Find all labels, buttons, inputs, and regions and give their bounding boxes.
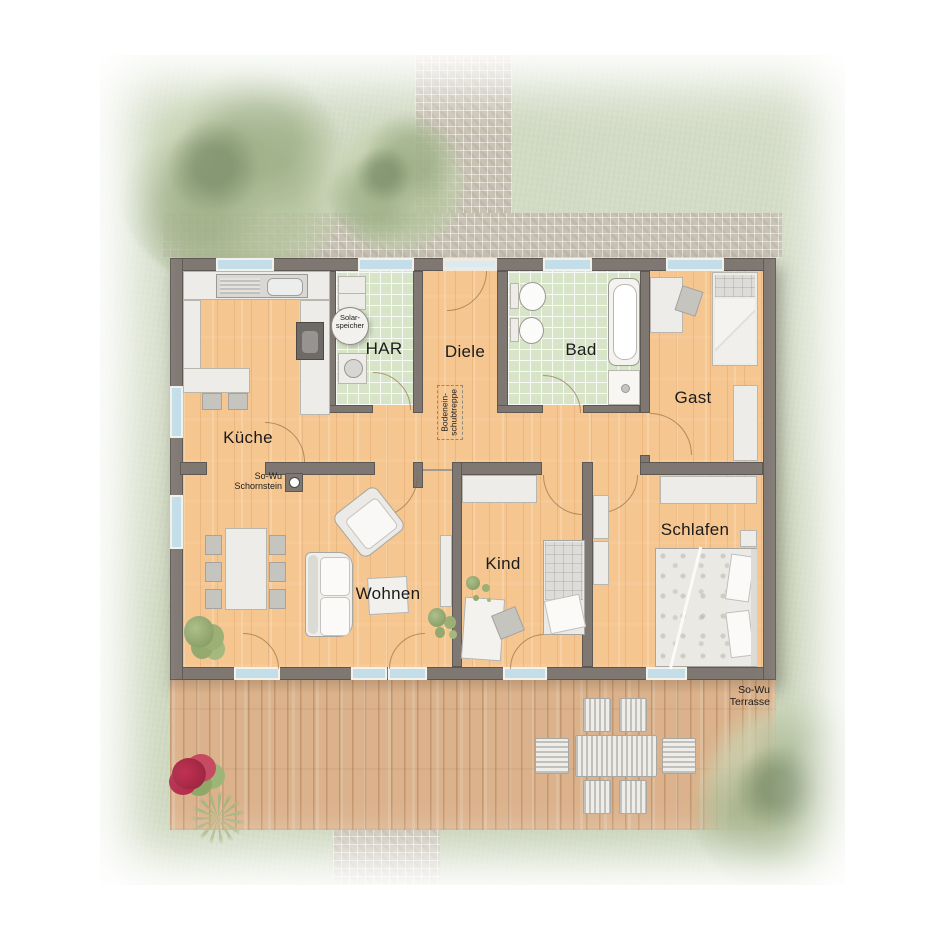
schlafen-cabinet-left-2 — [593, 541, 609, 585]
terrace-label-line2: Terrasse — [640, 697, 770, 709]
toilet-tank — [510, 283, 519, 309]
wall-diele-bad — [497, 271, 508, 413]
house: Solar- speicher Bodenein- schubtreppe — [170, 258, 776, 680]
bidet-bowl — [519, 317, 544, 344]
terrace-label-line1: So-Wu — [640, 685, 770, 697]
tree-top-left-large — [115, 63, 350, 288]
plant-kind — [466, 576, 480, 590]
terrace-table — [575, 735, 657, 777]
chimney-label: So-Wu Schornstein — [202, 472, 282, 492]
gast-bed-blanket — [715, 299, 755, 363]
solar-tank-label: Solar- speicher — [327, 314, 373, 331]
window-kueche-left — [172, 388, 181, 436]
window-wohnen-left — [172, 497, 181, 547]
window-har-top — [360, 260, 412, 269]
terrace-door-kind — [505, 669, 545, 678]
wall-bad-bottom-right — [583, 405, 640, 413]
dining-chair-l2 — [205, 562, 222, 582]
label-diele: Diele — [445, 342, 485, 362]
wall-bad-bottom-left — [497, 405, 543, 413]
bidet-tank — [510, 318, 519, 342]
plant-wohnen-right — [428, 608, 446, 627]
window-bad-top — [545, 260, 590, 269]
schlafen-wardrobe — [660, 476, 757, 504]
kind-shelf — [462, 475, 537, 503]
chimney-flue-icon — [289, 477, 300, 488]
window-wohnen-bottom — [353, 669, 385, 678]
har-shelf-divider — [339, 293, 365, 294]
label-kind: Kind — [485, 554, 520, 574]
bathtub-basin — [613, 284, 637, 360]
wall-wohnen-kind — [452, 462, 462, 667]
wohnen-cabinet — [440, 535, 452, 607]
sink-basin — [267, 278, 303, 296]
entrance-threshold — [445, 261, 495, 267]
sink-drainer — [220, 278, 260, 294]
tree-top-left-small — [325, 110, 465, 250]
open-plan-line — [423, 469, 452, 471]
red-flower-bush — [172, 758, 206, 790]
kind-bed — [543, 540, 585, 635]
kind-bed-blanket — [545, 542, 583, 600]
dining-chair-l3 — [205, 589, 222, 609]
window-kueche-top — [218, 260, 272, 269]
wall-har-diele — [413, 271, 423, 413]
sofa-back — [308, 555, 318, 634]
wall-middle-seg3 — [452, 462, 542, 475]
wall-middle-seg4 — [640, 462, 763, 475]
loft-stairs-label: Bodenein- schubtreppe — [441, 369, 460, 455]
kitchen-cabinet-left — [183, 300, 201, 370]
terrace-chair-bottom-2 — [619, 780, 647, 814]
stove-pan — [302, 331, 318, 353]
terrace-door-wohnen-1 — [236, 669, 278, 678]
toilet-bowl — [519, 282, 546, 311]
kitchen-peninsula — [183, 368, 250, 393]
dining-chair-r3 — [269, 589, 286, 609]
terrace-door-schlafen — [648, 669, 685, 678]
wall-bad-gast — [640, 271, 650, 413]
kitchen-stool-2 — [228, 393, 248, 410]
terrace-label: So-Wu Terrasse — [640, 685, 770, 708]
wall-exterior-right — [763, 258, 776, 680]
schlafen-bed — [655, 548, 757, 667]
yucca-plant — [190, 792, 246, 844]
shower-drain — [621, 384, 630, 393]
plant-wohnen-left — [184, 616, 214, 648]
sofa-cushion-2 — [320, 597, 350, 636]
dining-chair-l1 — [205, 535, 222, 555]
bathtub — [608, 278, 640, 366]
label-har: HAR — [366, 339, 403, 359]
har-shelf — [338, 276, 366, 310]
kind-bed-pillow — [544, 594, 586, 635]
garden-scene: Solar- speicher Bodenein- schubtreppe — [100, 55, 845, 885]
terrace-chair-bottom-1 — [583, 780, 611, 814]
kitchen-sink — [216, 274, 308, 298]
shower — [608, 370, 640, 405]
washer-drum — [344, 359, 363, 378]
label-gast: Gast — [674, 388, 711, 408]
gast-bed-pillow — [715, 275, 755, 297]
gast-wardrobe — [733, 385, 758, 461]
wall-har-bottom — [325, 405, 373, 413]
dining-table — [225, 528, 267, 610]
chimney-label-line2: Schornstein — [202, 482, 282, 492]
terrace-door-wohnen-2 — [390, 669, 425, 678]
sofa-cushion-1 — [320, 557, 350, 596]
label-schlafen: Schlafen — [661, 520, 730, 540]
dining-chair-r1 — [269, 535, 286, 555]
label-kueche: Küche — [223, 428, 273, 448]
schlafen-cabinet-left-1 — [593, 495, 609, 539]
schlafen-nightstand — [740, 530, 757, 547]
sofa — [305, 552, 353, 637]
label-bad: Bad — [565, 340, 596, 360]
solar-label-line2: speicher — [327, 322, 373, 330]
gast-bed — [712, 272, 758, 366]
kitchen-stool-1 — [202, 393, 222, 410]
terrace-deck: So-Wu Terrasse — [170, 680, 776, 830]
window-gast-top — [668, 260, 722, 269]
dining-chair-r2 — [269, 562, 286, 582]
terrace-chair-left — [535, 738, 569, 774]
schlafen-headboard — [751, 549, 757, 666]
cobble-path-bottom — [333, 830, 440, 885]
loft-label-line2: schubtreppe — [450, 369, 459, 455]
kitchen-stove — [296, 322, 324, 360]
washing-machine — [338, 353, 367, 384]
terrace-chair-top-1 — [583, 698, 611, 732]
label-wohnen: Wohnen — [356, 584, 421, 604]
